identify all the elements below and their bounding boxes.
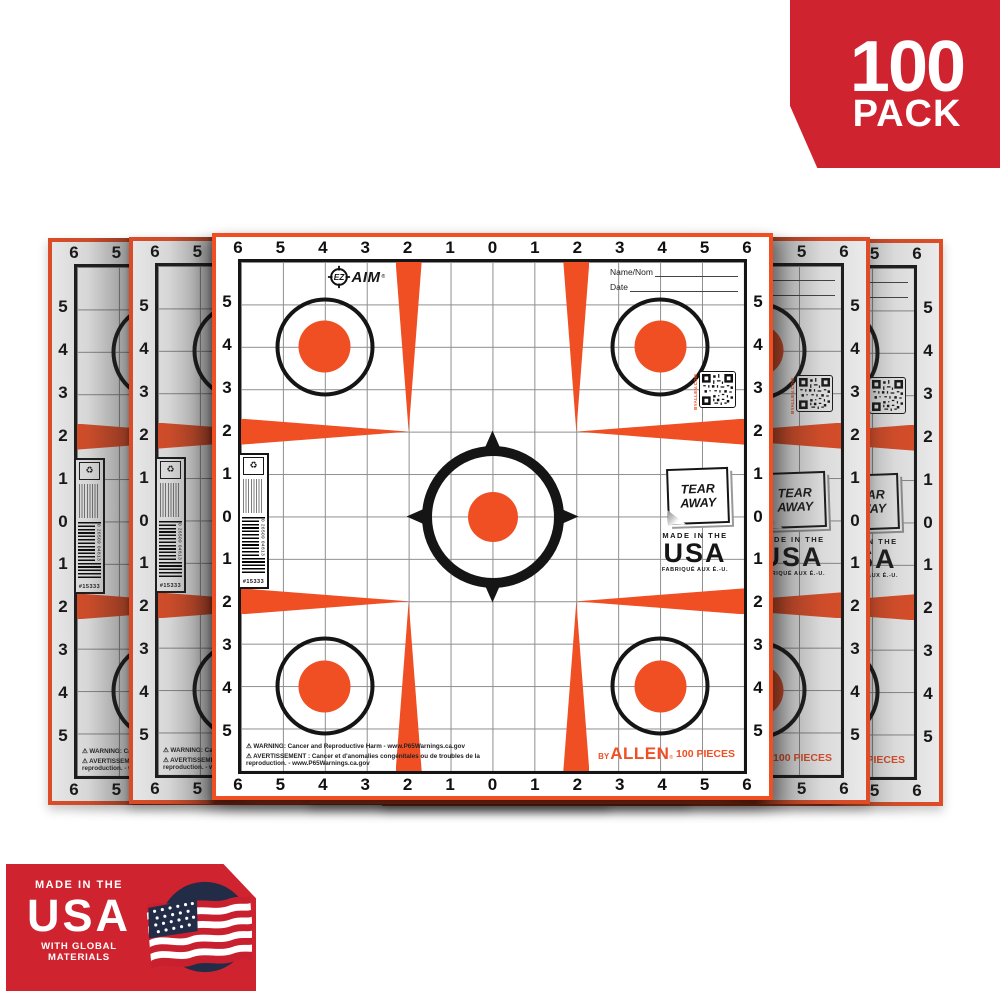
axis-label: 5 [870,781,879,801]
tear-away-graphic: TEAR AWAY [666,467,730,525]
axis-label: 2 [139,596,148,616]
axis-label: 1 [753,464,762,484]
pack-count-label: PACK [853,98,962,130]
axis-labels-right: 54321012345 [917,265,939,780]
axis-label: 6 [742,775,751,795]
aim-wordmark: AIM [352,269,381,286]
axis-label: 3 [615,775,624,795]
axis-label: 2 [58,426,67,446]
axis-label: 4 [139,682,148,702]
axis-label: 5 [139,296,148,316]
axis-label: 0 [488,238,497,258]
sight-wedge [241,588,409,614]
fine-print-block [79,484,100,518]
axis-label: 5 [139,725,148,745]
axis-labels-right: 54321012345 [844,263,866,778]
axis-label: 0 [923,513,932,533]
sight-in-grid-target: 6543210123456 6543210123456 54321012345 … [212,233,773,800]
axis-label: 5 [58,726,67,746]
barcode-label: ♻ 0 26509 04813 #15333 [238,453,269,589]
page-curl-icon [667,510,686,526]
warning-fr: ⚠ AVERTISSEMENT : Cancer et d'anomalies … [246,753,489,767]
axis-label: 0 [139,511,148,531]
axis-label: 2 [403,238,412,258]
sku-number: #15333 [79,584,100,590]
axis-label: 3 [361,775,370,795]
axis-label: 1 [753,549,762,569]
axis-label: 6 [912,781,921,801]
axis-label: 5 [58,297,67,317]
barcode-number: 0 26509 04813 [176,523,182,560]
axis-label: 3 [615,238,624,258]
barcode: 0 26509 04813 [159,521,182,579]
bullseye-dot [634,321,686,373]
warning-en: ⚠ WARNING: Cancer and Reproductive Harm … [246,743,489,750]
barcode: 0 26509 04813 [78,522,101,580]
axis-label: 3 [222,378,231,398]
axis-label: 3 [58,640,67,660]
axis-label: 6 [233,238,242,258]
axis-label: 4 [222,335,231,355]
axis-label: 2 [58,597,67,617]
name-date-fields: Name/Nom Date [610,267,738,297]
axis-labels-bottom: 6543210123456 [238,774,747,796]
write-in-line [630,283,738,292]
axis-label: 5 [700,238,709,258]
axis-labels-left: 54321012345 [216,259,238,774]
allen-logo: BY ALLEN ® [598,744,673,764]
axis-label: 4 [850,682,859,702]
barcode-number: 0 26509 04813 [95,524,101,561]
bullseye-bottom-left [275,637,374,736]
axis-label: 3 [222,635,231,655]
product-image: 6543210123456 6543210123456 54321012345 … [0,0,1000,1000]
piece-count: 100 PIECES [676,748,735,760]
barcode-label: ♻ 0 26509 04813 #15333 [155,457,186,593]
axis-label: 4 [753,678,762,698]
target-grid: EZ AIM ® Name/Nom Date BYALLEN.COM TEAR … [238,259,747,774]
axis-label: 4 [58,340,67,360]
axis-labels-left: 54321012345 [52,264,74,779]
axis-label: 1 [923,555,932,575]
axis-label: 4 [318,775,327,795]
sku-number: #15333 [243,579,264,585]
axis-label: 6 [69,243,78,263]
axis-label: 2 [222,592,231,612]
axis-label: 5 [797,779,806,799]
axis-label: 4 [657,238,666,258]
axis-label: 5 [753,721,762,741]
pack-count-badge: 100 PACK [790,0,1000,168]
axis-label: 5 [112,780,121,800]
crosshair-center-dot [468,492,518,542]
sight-wedge [563,601,589,771]
axis-label: 3 [850,382,859,402]
barcode-number: 0 26509 04813 [259,519,265,556]
bullseye-bottom-right [611,637,710,736]
axis-label: 6 [742,238,751,258]
axis-label: 3 [139,639,148,659]
axis-label: 2 [222,421,231,441]
qr-code: BYALLEN.COM [869,377,906,414]
bullseye-dot [299,660,351,712]
axis-label: 2 [850,425,859,445]
axis-label: 3 [923,384,932,404]
front-target: 6543210123456 6543210123456 54321012345 … [212,233,773,800]
axis-label: 6 [839,779,848,799]
axis-label: 5 [112,243,121,263]
axis-label: 5 [193,779,202,799]
qr-caption: BYALLEN.COM [790,378,795,414]
registered-mark: ® [382,274,386,280]
axis-label: 2 [573,238,582,258]
axis-label: 1 [222,464,231,484]
axis-label: 5 [276,238,285,258]
barcode-label: ♻ 0 26509 04813 #15333 [74,458,105,594]
axis-label: 5 [923,727,932,747]
axis-label: 2 [923,427,932,447]
bullseye-dot [299,321,351,373]
tear-away-line2: AWAY [777,500,813,515]
qr-caption: BYALLEN.COM [693,374,698,410]
axis-label: 1 [58,469,67,489]
axis-label: 5 [870,244,879,264]
sight-wedge [576,419,744,445]
tear-away-line2: AWAY [680,496,716,511]
recycle-icon: ♻ [160,461,181,479]
axis-label: 4 [850,339,859,359]
axis-label: 5 [923,298,932,318]
axis-label: 0 [850,511,859,531]
recycle-icon: ♻ [79,462,100,480]
axis-label: 0 [753,507,762,527]
tear-away-line1: TEAR [680,482,714,497]
fine-print-block [243,479,264,513]
axis-label: 2 [753,592,762,612]
sku-number: #15333 [160,583,181,589]
axis-label: 1 [445,775,454,795]
axis-label: 5 [753,292,762,312]
axis-label: 5 [193,242,202,262]
axis-label: 5 [797,242,806,262]
crosshair-icon: EZ [327,265,351,289]
registered-mark: ® [669,755,673,761]
axis-label: 3 [850,639,859,659]
axis-label: 5 [276,775,285,795]
svg-text:EZ: EZ [333,272,345,282]
axis-label: 4 [923,684,932,704]
axis-label: 3 [58,383,67,403]
qr-icon [799,378,830,409]
us-flag-icon [144,874,252,980]
axis-label: 3 [923,641,932,661]
axis-label: 1 [445,238,454,258]
axis-label: 6 [839,242,848,262]
axis-label: 6 [912,244,921,264]
sight-wedge [396,262,422,432]
bullseye-dot [634,660,686,712]
made-in-usa-mark: MADE IN THE USA FABRIQUÉ AUX É.-U. [652,532,738,574]
axis-label: 5 [850,725,859,745]
axis-label: 6 [69,780,78,800]
axis-labels-top: 6543210123456 [238,237,747,259]
axis-label: 2 [753,421,762,441]
axis-label: 3 [361,238,370,258]
piece-count: 100 PIECES [773,752,832,764]
axis-label: 2 [850,596,859,616]
sight-wedge [563,262,589,432]
sight-wedge [241,419,409,445]
axis-label: 1 [139,468,148,488]
axis-label: 0 [222,507,231,527]
ez-aim-logo: EZ AIM ® [327,265,386,289]
axis-label: 5 [850,296,859,316]
warning-text: ⚠ WARNING: Cancer and Reproductive Harm … [246,743,489,769]
axis-label: 4 [923,341,932,361]
qr-code: BYALLEN.COM [796,375,833,412]
axis-label: 4 [139,339,148,359]
fine-print-block [160,483,181,517]
axis-label: 2 [923,598,932,618]
barcode: 0 26509 04813 [242,517,265,575]
axis-label: 4 [318,238,327,258]
axis-label: 5 [222,292,231,312]
recycle-icon: ♻ [243,457,264,475]
qr-code: BYALLEN.COM [699,371,736,408]
axis-label: 2 [403,775,412,795]
date-label: Date [610,282,628,292]
axis-label: 4 [222,678,231,698]
axis-label: 3 [139,382,148,402]
qr-icon [702,374,733,405]
axis-label: 4 [58,683,67,703]
axis-labels-right: 54321012345 [747,259,769,774]
axis-label: 1 [58,554,67,574]
axis-label: 6 [233,775,242,795]
axis-label: 0 [488,775,497,795]
axis-label: 6 [150,779,159,799]
write-in-line [655,268,738,277]
axis-label: 1 [222,549,231,569]
axis-label: 1 [850,553,859,573]
axis-label: 3 [753,378,762,398]
bullseye-top-left [275,297,374,396]
axis-label: 0 [58,512,67,532]
axis-label: 2 [573,775,582,795]
axis-labels-left: 54321012345 [133,263,155,778]
name-label: Name/Nom [610,267,653,277]
axis-label: 6 [150,242,159,262]
axis-label: 5 [222,721,231,741]
axis-label: 3 [753,635,762,655]
axis-label: 1 [530,775,539,795]
axis-label: 1 [923,470,932,490]
pack-count-number: 100 [850,37,964,98]
axis-label: 1 [850,468,859,488]
usa-badge: MADE IN THE USA WITH GLOBAL MATERIALS [6,864,256,991]
sight-wedge [576,588,744,614]
axis-label: 4 [753,335,762,355]
tear-away-line1: TEAR [777,486,811,501]
axis-label: 2 [139,425,148,445]
qr-icon [872,380,903,411]
axis-label: 5 [700,775,709,795]
axis-label: 1 [530,238,539,258]
axis-label: 4 [657,775,666,795]
axis-label: 1 [139,553,148,573]
usa-badge-text: MADE IN THE USA WITH GLOBAL MATERIALS [18,880,140,964]
